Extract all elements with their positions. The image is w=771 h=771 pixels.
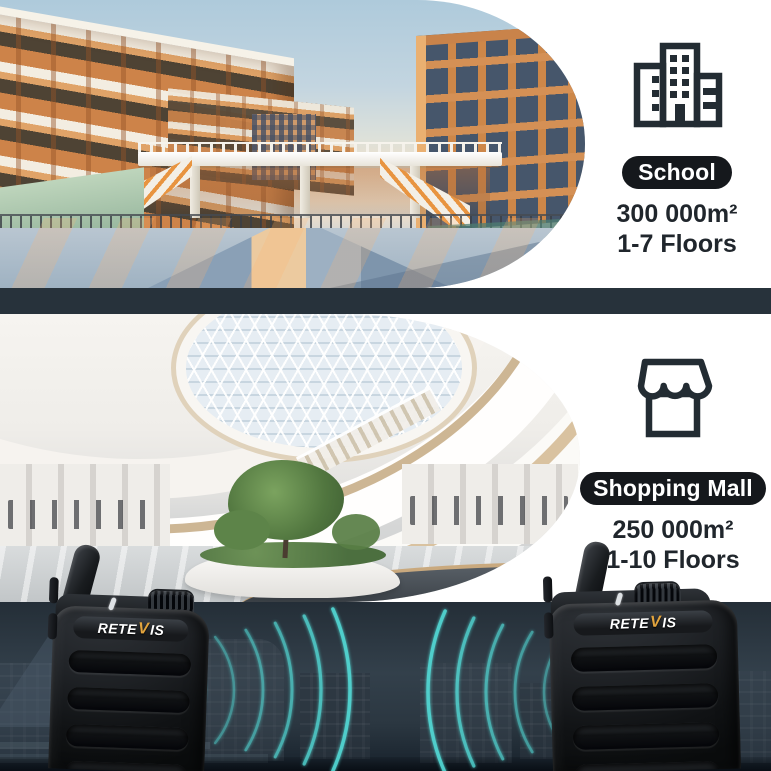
speaker-slot (570, 644, 717, 672)
clothing-racks (410, 496, 568, 525)
walkie-talkie-left: RETEVIS (48, 543, 212, 771)
brand-text: RETE (610, 615, 650, 632)
brand-v-mark: V (138, 620, 150, 638)
school-photo (0, 0, 585, 288)
brand-logo: RETEVIS (73, 616, 189, 642)
product-banner: School 300 000m² 1-7 Floors Shopping (0, 0, 771, 771)
brand-text: RETE (97, 620, 137, 637)
ptt-button (49, 577, 59, 603)
tree-canopy (332, 514, 380, 550)
speaker-grille (64, 650, 191, 771)
speaker-grille (570, 644, 721, 771)
divider-band (0, 288, 771, 314)
school-label-badge: School (622, 156, 732, 189)
sunset-light-streaks (0, 218, 585, 288)
school-info-column: School 300 000m² 1-7 Floors (586, 38, 768, 258)
brand-text: IS (150, 622, 165, 638)
brand-logo: RETEVIS (573, 610, 713, 636)
clothing-racks (8, 500, 158, 529)
speaker-slot (66, 724, 188, 750)
brand-text: IS (662, 614, 677, 630)
tree-canopy (214, 510, 270, 550)
brand-v-mark: V (650, 614, 662, 632)
side-button (48, 613, 58, 639)
radio-body: RETEVIS (549, 600, 741, 771)
radio-body: RETEVIS (48, 605, 210, 771)
storefront-icon (625, 352, 721, 448)
bridge-column (300, 166, 310, 218)
speaker-slot (571, 683, 718, 711)
walkie-talkie-right: RETEVIS (547, 538, 741, 771)
speaker-slot (67, 687, 189, 713)
school-floors-text: 1-7 Floors (586, 231, 768, 259)
speaker-slot (572, 722, 719, 750)
ptt-button (543, 576, 553, 602)
side-button (544, 612, 554, 638)
school-area-text: 300 000m² (586, 201, 768, 229)
mall-label-badge: Shopping Mall (580, 472, 766, 505)
sky-bridge (138, 152, 502, 166)
speaker-slot (69, 650, 191, 676)
building-icon (629, 38, 725, 134)
speaker-slot (574, 761, 721, 771)
